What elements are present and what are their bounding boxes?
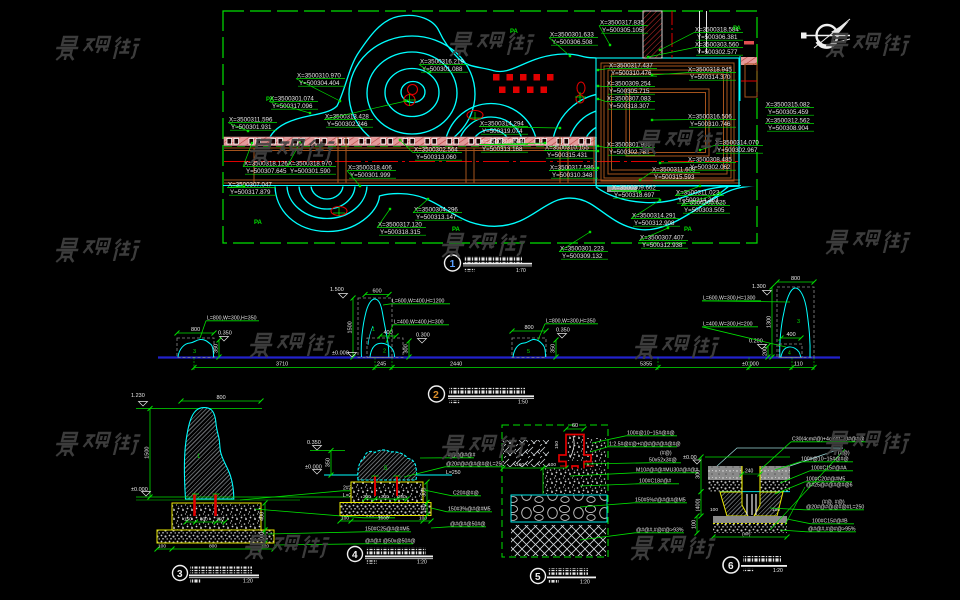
svg-text:1: 1: [372, 327, 375, 333]
svg-text:0.350: 0.350: [556, 328, 570, 334]
svg-text:600: 600: [373, 289, 382, 295]
svg-text:200: 200: [763, 347, 769, 356]
svg-text:240: 240: [745, 469, 754, 475]
svg-text:150: 150: [554, 441, 560, 449]
svg-text:1.300: 1.300: [752, 284, 766, 290]
svg-text:1500: 1500: [348, 321, 354, 333]
svg-text:±0.000: ±0.000: [742, 362, 759, 368]
svg-text:400: 400: [787, 332, 796, 338]
svg-text:5: 5: [535, 572, 541, 583]
svg-text:100: 100: [692, 520, 698, 529]
svg-text:±0.000: ±0.000: [332, 350, 349, 356]
svg-text:800: 800: [209, 544, 217, 550]
svg-text:1300: 1300: [767, 316, 773, 328]
svg-text:2: 2: [383, 349, 386, 355]
svg-text:400: 400: [260, 512, 266, 521]
svg-text:300: 300: [381, 494, 389, 499]
svg-text:100: 100: [341, 516, 349, 522]
svg-text:1: 1: [450, 258, 456, 270]
svg-text:100: 100: [516, 462, 524, 468]
svg-text:PA: PA: [452, 227, 461, 233]
svg-text:4: 4: [788, 351, 791, 357]
svg-text:800: 800: [217, 395, 226, 401]
svg-text:L=250: L=250: [446, 470, 461, 476]
svg-text:0.350: 0.350: [218, 331, 232, 337]
svg-text:350: 350: [214, 344, 220, 353]
svg-text:3: 3: [797, 319, 800, 325]
svg-text:350: 350: [551, 344, 557, 353]
svg-text:1500: 1500: [145, 447, 151, 459]
svg-text:1:20: 1:20: [580, 579, 590, 585]
svg-text:350: 350: [326, 458, 332, 467]
svg-text:0.300: 0.300: [416, 333, 430, 339]
svg-text:60: 60: [572, 423, 578, 429]
svg-text:5355: 5355: [640, 362, 652, 368]
svg-text:150: 150: [184, 517, 192, 522]
svg-text:5: 5: [527, 349, 530, 355]
svg-text:1:70: 1:70: [516, 268, 526, 274]
svg-text:100: 100: [158, 544, 166, 550]
svg-text:1.230: 1.230: [131, 393, 145, 399]
svg-text:300: 300: [404, 344, 410, 353]
svg-text:1:20: 1:20: [243, 579, 253, 585]
svg-text:PA: PA: [733, 26, 742, 32]
svg-text:300: 300: [422, 488, 428, 497]
svg-text:1:20: 1:20: [417, 560, 427, 566]
svg-text:300: 300: [200, 517, 208, 522]
svg-text:1:20: 1:20: [773, 568, 783, 574]
svg-text:3: 3: [193, 349, 196, 355]
svg-text:3: 3: [177, 569, 183, 580]
svg-text:2: 2: [433, 389, 439, 401]
svg-text:0.350: 0.350: [307, 440, 321, 446]
svg-text:100: 100: [710, 507, 718, 513]
svg-text:1.500: 1.500: [330, 287, 344, 293]
svg-text:@#25@#@#@#@6: @#25@#@#@#@6: [806, 483, 853, 489]
svg-text:(##): (##): [742, 532, 751, 538]
svg-text:400: 400: [384, 330, 393, 336]
svg-text:(400): (400): [696, 498, 702, 511]
svg-text:110: 110: [794, 362, 803, 368]
svg-text:300: 300: [696, 470, 702, 479]
svg-text:150: 150: [216, 517, 224, 522]
svg-text:PA: PA: [254, 220, 263, 226]
svg-text:100: 100: [548, 462, 556, 468]
svg-text:245: 245: [377, 362, 386, 368]
svg-text:6: 6: [728, 561, 734, 572]
svg-text:PA: PA: [684, 227, 693, 233]
svg-text:(#@): (#@): [660, 451, 672, 457]
svg-text:2440: 2440: [450, 362, 462, 368]
svg-text:200: 200: [398, 494, 406, 499]
svg-text:1:50: 1:50: [518, 400, 528, 406]
svg-text:800: 800: [191, 327, 200, 333]
svg-text:4: 4: [352, 550, 358, 561]
svg-text:150: 150: [422, 504, 428, 513]
svg-text:PA: PA: [266, 97, 275, 103]
svg-text:200: 200: [363, 494, 371, 499]
svg-text:800: 800: [791, 276, 800, 282]
svg-text:1000: 1000: [378, 516, 389, 522]
svg-text:3710: 3710: [276, 362, 288, 368]
svg-text:800: 800: [525, 325, 534, 331]
svg-text:±0.000: ±0.000: [131, 487, 148, 493]
